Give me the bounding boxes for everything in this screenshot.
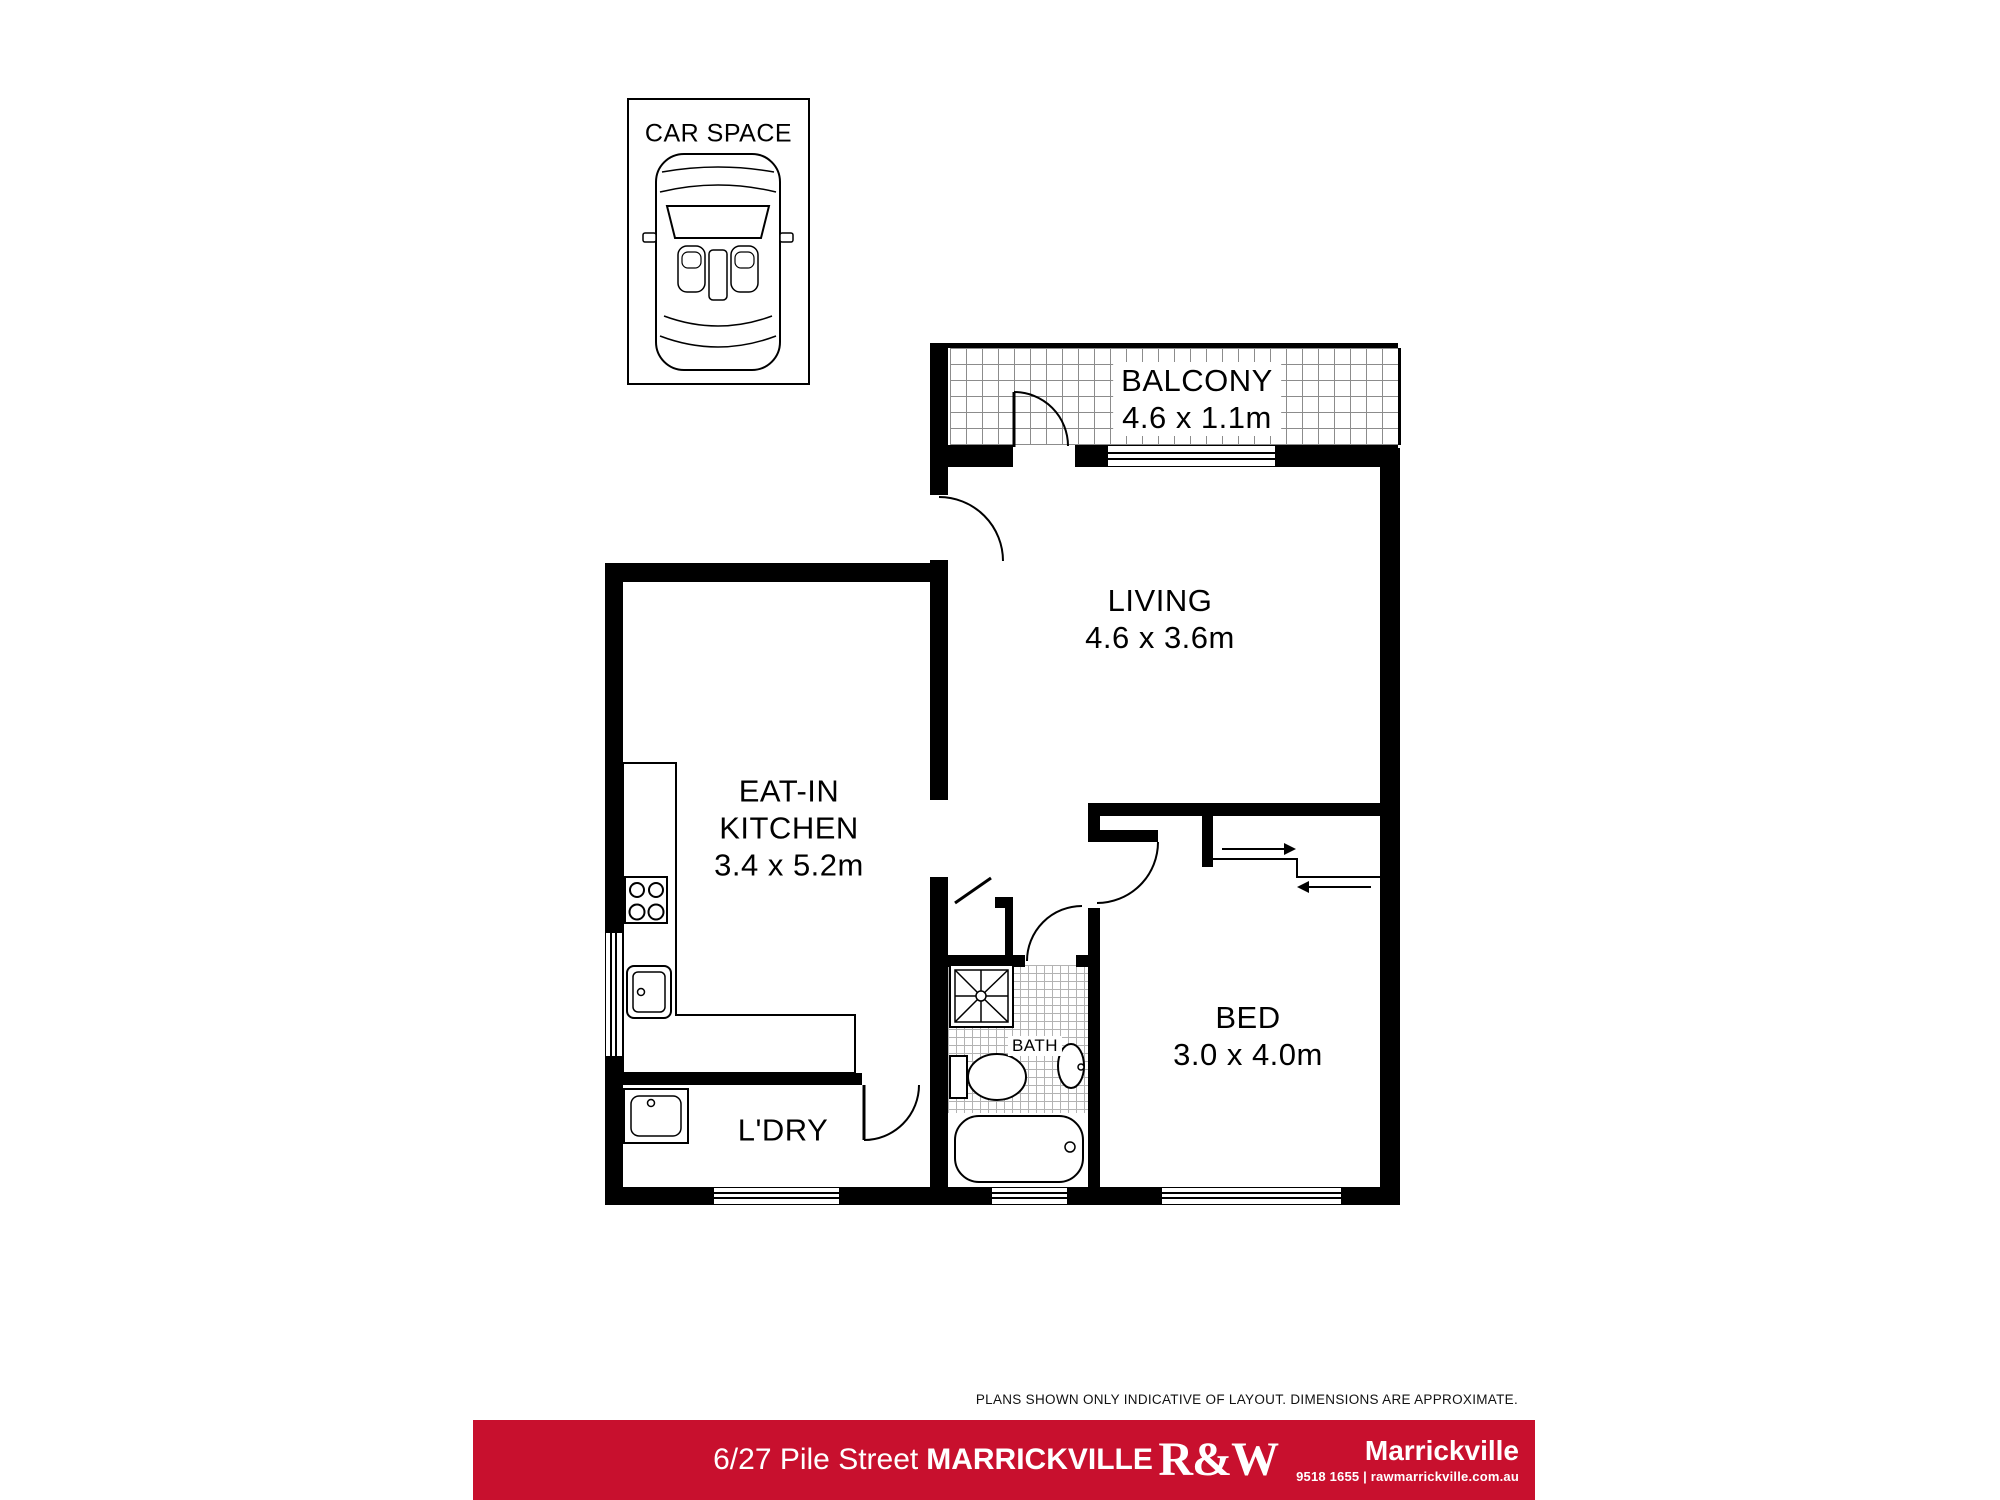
- footer-brand-bar: 6/27 Pile StreetMARRICKVILLE R&W Marrick…: [473, 1420, 1535, 1500]
- toilet-icon: [950, 1054, 1026, 1100]
- balcony-dims: 4.6 x 1.1m: [1121, 399, 1273, 436]
- property-address: 6/27 Pile StreetMARRICKVILLE: [713, 1443, 1153, 1477]
- stairs-icon: [1213, 843, 1380, 893]
- floorplan-page: CAR SPACE: [0, 0, 2000, 1500]
- closet-door-icon: [955, 878, 991, 903]
- living-label: LIVING 4.6 x 3.6m: [1085, 582, 1235, 656]
- living-name: LIVING: [1085, 582, 1235, 619]
- agency-contact: 9518 1655 | rawmarrickville.com.au: [1296, 1469, 1519, 1484]
- balcony-name: BALCONY: [1121, 362, 1273, 399]
- address-street: 6/27 Pile Street: [713, 1443, 918, 1476]
- kitchen-name-line2: KITCHEN: [714, 810, 864, 847]
- balcony-label: BALCONY 4.6 x 1.1m: [1113, 362, 1281, 436]
- bathtub-icon: [955, 1116, 1083, 1182]
- shower-icon: [950, 965, 1013, 1027]
- laundry-label: L'DRY: [738, 1112, 829, 1149]
- stove-icon: [625, 877, 667, 923]
- bath-label: BATH: [1008, 1036, 1062, 1056]
- plan-linework: [0, 0, 2000, 1500]
- kitchen-dims: 3.4 x 5.2m: [714, 847, 864, 884]
- rw-logo: R&W: [1158, 1436, 1278, 1484]
- bed-name: BED: [1173, 999, 1323, 1036]
- agency-details: Marrickville 9518 1655 | rawmarrickville…: [1296, 1436, 1519, 1484]
- entry-door-icon: [939, 497, 1003, 561]
- kitchen-label: EAT-IN KITCHEN 3.4 x 5.2m: [714, 773, 864, 884]
- bed-door-icon: [1097, 842, 1158, 903]
- agency-brand: R&W Marrickville 9518 1655 | rawmarrickv…: [1158, 1436, 1519, 1484]
- address-suburb: MARRICKVILLE: [926, 1443, 1153, 1476]
- agency-office: Marrickville: [1365, 1436, 1519, 1466]
- car-icon: [643, 154, 793, 370]
- disclaimer-text: PLANS SHOWN ONLY INDICATIVE OF LAYOUT. D…: [0, 1392, 1518, 1407]
- bed-label: BED 3.0 x 4.0m: [1173, 999, 1323, 1073]
- living-dims: 4.6 x 3.6m: [1085, 619, 1235, 656]
- laundry-tub-icon: [624, 1089, 688, 1143]
- kitchen-name-line1: EAT-IN: [714, 773, 864, 810]
- kitchen-sink-icon: [627, 966, 671, 1018]
- bed-dims: 3.0 x 4.0m: [1173, 1036, 1323, 1073]
- bath-door-icon: [1027, 906, 1082, 961]
